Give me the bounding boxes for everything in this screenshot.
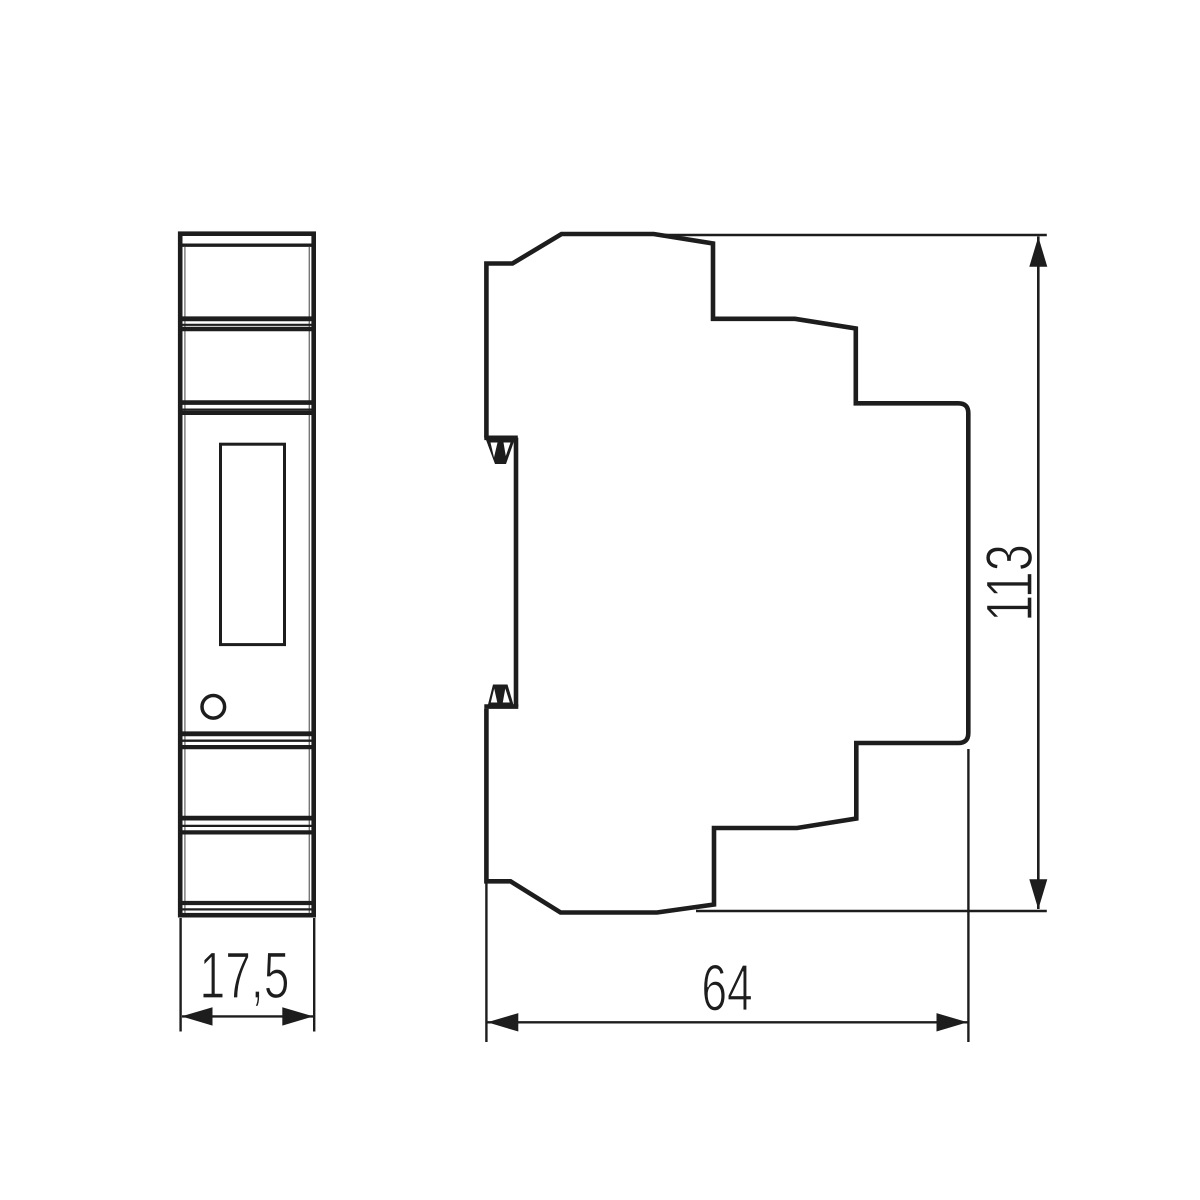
svg-text:17,5: 17,5 xyxy=(200,939,290,1013)
svg-text:113: 113 xyxy=(973,544,1047,622)
svg-text:64: 64 xyxy=(701,951,752,1025)
